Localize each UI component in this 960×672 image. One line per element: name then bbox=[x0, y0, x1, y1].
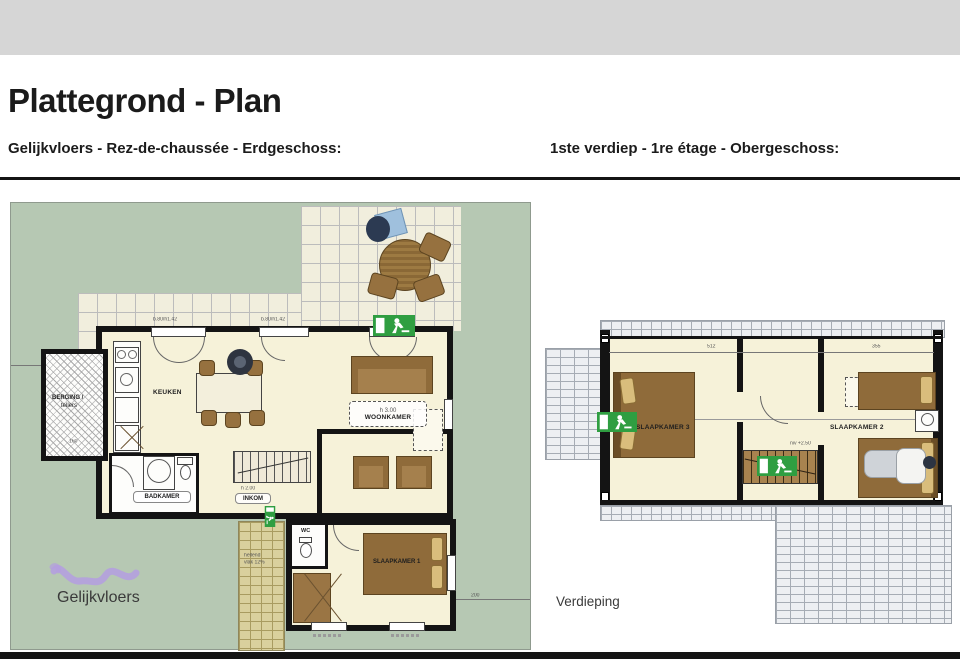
sleeping-person-head bbox=[923, 456, 936, 469]
dining-chair bbox=[199, 360, 215, 376]
stairs bbox=[233, 451, 311, 483]
first-floor-caption: Verdieping bbox=[556, 594, 620, 609]
berging-sublabel: tellers bbox=[61, 403, 77, 409]
bottom-border-line bbox=[0, 652, 960, 659]
wc-bowl-icon bbox=[300, 543, 312, 558]
armchair bbox=[396, 456, 432, 489]
emergency-exit-sign bbox=[597, 412, 637, 432]
divider-line bbox=[0, 177, 960, 180]
roof-hatch-left bbox=[545, 348, 602, 460]
first-floor-heading: 1ste verdiep - 1re étage - Obergeschoss: bbox=[550, 140, 839, 157]
inkom-chip: INKOM bbox=[235, 493, 271, 504]
sleeping-person-torso bbox=[896, 448, 926, 484]
ground-floor-caption: Gelijkvloers bbox=[57, 589, 140, 607]
keuken-label: KEUKEN bbox=[153, 389, 182, 396]
sink-bowl-icon bbox=[128, 350, 137, 359]
emergency-exit-sign bbox=[757, 456, 797, 476]
walkway-note: vlak 12% bbox=[244, 560, 265, 565]
exit-pictogram-icon bbox=[373, 315, 415, 336]
terrace-person bbox=[366, 216, 390, 242]
wardrobe bbox=[293, 573, 331, 623]
document-page: Plattegrond - Plan Gelijkvloers - Rez-de… bbox=[0, 0, 960, 672]
bed-pillow bbox=[920, 376, 933, 404]
office-chair-seat bbox=[234, 356, 246, 368]
roof-hatch-bottom-right bbox=[775, 505, 952, 624]
partition-wall bbox=[818, 339, 824, 412]
toilet-tank bbox=[177, 457, 193, 465]
berging-label: BERGING / bbox=[52, 395, 83, 401]
wc-label: WC bbox=[301, 528, 310, 534]
bedroom-window bbox=[311, 622, 347, 631]
partition-wall bbox=[737, 339, 743, 392]
dining-chair bbox=[201, 410, 217, 426]
ground-floor-heading: Gelijkvloers - Rez-de-chaussée - Erdgesc… bbox=[8, 140, 341, 157]
page-title: Plattegrond - Plan bbox=[8, 82, 281, 120]
top-wall-line bbox=[600, 336, 943, 339]
dimension-value-left: 512 bbox=[707, 344, 716, 349]
stairs-level-note: niv +2.50 bbox=[790, 441, 811, 446]
kitchen-cabinet bbox=[115, 397, 139, 423]
badkamer-chip: BADKAMER bbox=[133, 491, 191, 503]
window-dim-smudge bbox=[313, 634, 343, 637]
dining-chair bbox=[225, 412, 241, 428]
woonkamer-label: WOONKAMER bbox=[365, 414, 412, 421]
shower-basin-icon bbox=[147, 459, 171, 483]
roof-strip-bottom bbox=[600, 505, 777, 521]
scan-top-strip bbox=[0, 0, 960, 55]
interior-wall bbox=[317, 429, 322, 518]
slaapkamer3-label: SLAAPKAMER 3 bbox=[636, 424, 690, 431]
sofa bbox=[351, 356, 433, 394]
woonkamer-chip: h 3.00 WOONKAMER bbox=[349, 401, 427, 427]
right-dim-note: 200 bbox=[471, 593, 480, 598]
armchair bbox=[353, 456, 389, 489]
emergency-exit-sign bbox=[373, 315, 415, 336]
slaapkamer1-label: SLAAPKAMER 1 bbox=[373, 559, 420, 565]
window-opening bbox=[259, 327, 309, 337]
window-dim-label: b.80/h1.42 bbox=[261, 317, 285, 322]
inkom-label: INKOM bbox=[243, 496, 263, 502]
armchair-seat bbox=[359, 466, 383, 487]
exit-pictogram-icon bbox=[249, 506, 291, 527]
sofa-seat bbox=[358, 369, 426, 393]
bed-pillow bbox=[431, 537, 443, 561]
sink-bowl-icon bbox=[117, 350, 126, 359]
dining-table bbox=[196, 373, 262, 413]
dining-chair bbox=[249, 410, 265, 426]
emergency-exit-sign bbox=[247, 506, 268, 548]
first-floor-plan: 512 355 SLAAPKAMER 3 niv +2.50 bbox=[540, 202, 960, 648]
toilet-bowl-icon bbox=[180, 465, 191, 480]
dimension-value-right: 355 bbox=[872, 344, 881, 349]
exit-pictogram-icon bbox=[597, 412, 637, 432]
walkway-note: hellend bbox=[244, 553, 260, 558]
oven-dial-icon bbox=[120, 373, 133, 386]
window-dim-smudge bbox=[391, 634, 421, 637]
exit-pictogram-icon bbox=[757, 456, 797, 476]
washbasin-icon bbox=[921, 413, 934, 426]
bedroom-window bbox=[389, 622, 425, 631]
right-dimension-line bbox=[456, 599, 530, 600]
dimension-line-top bbox=[609, 352, 934, 353]
ground-floor-plan: b.80/h1.42 b.80/h1.42 BERGING / tellers … bbox=[10, 202, 531, 650]
armchair-seat bbox=[402, 466, 426, 487]
side-window-opening bbox=[444, 399, 453, 433]
bedroom-side-window bbox=[447, 555, 456, 591]
kitchen-fridge bbox=[115, 425, 139, 451]
partition-wall bbox=[818, 445, 824, 504]
inkom-note: h 2.00 bbox=[241, 486, 255, 491]
window-dim-label: b.80/h1.42 bbox=[153, 317, 177, 322]
bed-pillow bbox=[431, 565, 443, 589]
left-dimension-line bbox=[11, 365, 41, 366]
slaapkamer2-label: SLAAPKAMER 2 bbox=[830, 424, 884, 431]
berging-dim: 160 bbox=[69, 439, 78, 444]
kitchen-door-opening bbox=[151, 327, 206, 337]
badkamer-label: BADKAMER bbox=[145, 494, 180, 500]
